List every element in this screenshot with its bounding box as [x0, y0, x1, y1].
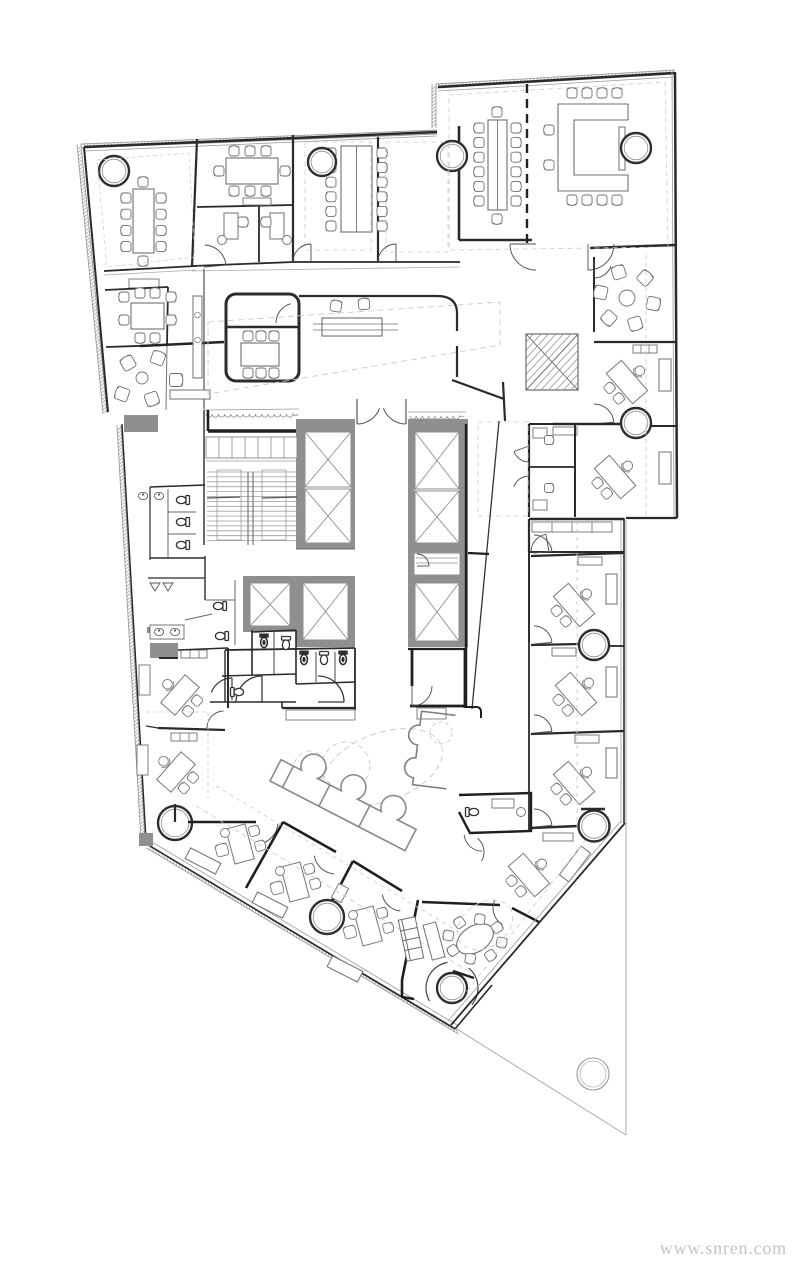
svg-text:www.snren.com: www.snren.com — [660, 1238, 787, 1258]
